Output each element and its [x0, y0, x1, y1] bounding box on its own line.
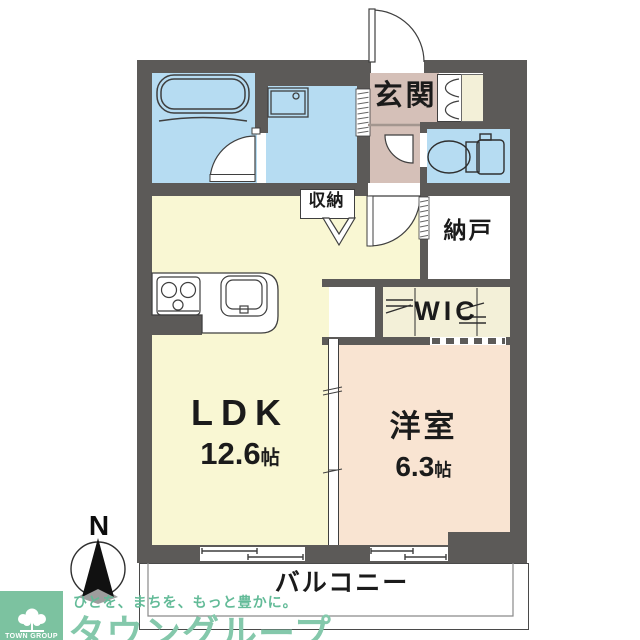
room-toilet: [425, 127, 512, 186]
room-bathroom: [150, 70, 257, 186]
entrance-opening: [371, 60, 424, 73]
wall-kitchen-stub: [137, 315, 202, 335]
tree-logo-icon: [12, 607, 52, 633]
floorplan-canvas: 玄関 納戸 WIC 収納 LDK 12.6帖 洋室 6.3帖 バルコニー N ひ…: [0, 0, 640, 640]
room-hallway: [368, 123, 422, 185]
ldk-door-opening: [368, 183, 420, 196]
label-ldk-name: LDK: [150, 394, 330, 432]
label-western-unit: 帖: [434, 460, 451, 480]
label-entrance: 玄関: [363, 81, 448, 111]
label-western-size: 6.3帖: [335, 452, 512, 481]
wall-right: [510, 73, 527, 563]
label-western-name: 洋室: [335, 411, 512, 444]
entrance-door: [369, 9, 424, 62]
wall-washroom-top: [255, 73, 370, 86]
wall-toilet-top: [420, 122, 510, 129]
label-storage: 収納: [300, 192, 353, 210]
room-ldk-upper: [150, 194, 427, 281]
wall-wic-bottom: [322, 337, 512, 345]
label-storeroom: 納戸: [425, 218, 512, 242]
label-ldk-unit: 帖: [261, 448, 280, 469]
wall-top: [137, 60, 527, 73]
closet-box: [327, 284, 377, 339]
window-opening-western: [370, 547, 448, 561]
wall-topright-block: [483, 73, 510, 129]
shoe-counter: [461, 74, 484, 122]
logo-caption: TOWN GROUP: [5, 633, 58, 640]
wall-bath-divider: [255, 85, 268, 133]
compass-north-label: N: [84, 511, 114, 540]
window-opening-ldk: [200, 547, 305, 561]
wall-bottomright-block: [448, 532, 527, 563]
room-washroom: [266, 83, 359, 186]
toilet-door-opening: [420, 133, 427, 167]
label-ldk-size: 12.6帖: [150, 438, 330, 471]
town-group-logo: TOWN GROUP: [0, 591, 63, 640]
wall-wic-left: [375, 285, 383, 339]
wall-wic-top: [322, 279, 512, 287]
label-western-room: 洋室 6.3帖: [335, 411, 512, 481]
label-wic: WIC: [383, 297, 510, 325]
brand-name: タウングループ: [68, 603, 332, 640]
label-ldk: LDK 12.6帖: [150, 394, 330, 470]
